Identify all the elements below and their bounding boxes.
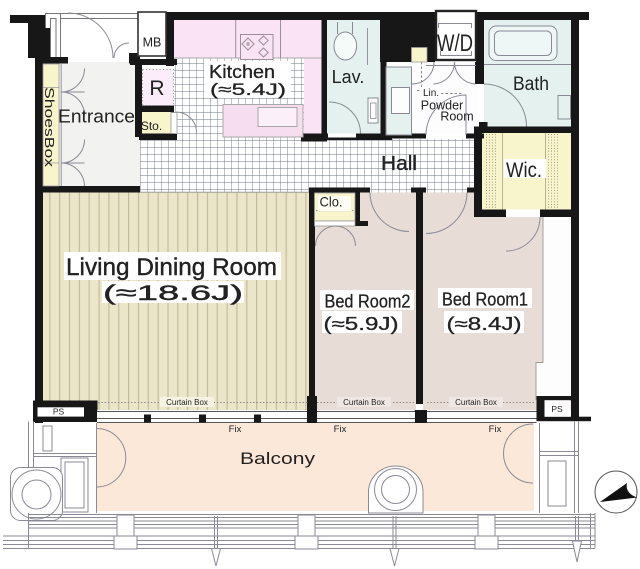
svg-text:Bed Room2: Bed Room2 [325, 292, 411, 312]
svg-text:(≈5.4J): (≈5.4J) [210, 81, 286, 99]
svg-text:PS: PS [53, 407, 65, 417]
svg-text:Lin.: Lin. [423, 88, 439, 99]
svg-text:Bath: Bath [513, 74, 549, 95]
svg-text:Fix: Fix [229, 424, 242, 435]
svg-text:Entrance: Entrance [58, 107, 135, 127]
svg-text:Fix: Fix [489, 424, 502, 435]
svg-text:Fix: Fix [334, 424, 347, 435]
svg-text:Lav.: Lav. [332, 67, 365, 87]
svg-text:Living Dining Room: Living Dining Room [66, 254, 277, 281]
svg-text:R: R [149, 77, 164, 100]
svg-text:Kitchen: Kitchen [209, 62, 275, 82]
svg-text:Clo.: Clo. [320, 194, 343, 210]
svg-text:(≈5.9J): (≈5.9J) [324, 314, 399, 334]
svg-text:Hall: Hall [381, 153, 417, 175]
svg-text:Curtain Box: Curtain Box [455, 398, 497, 407]
svg-text:(≈8.4J): (≈8.4J) [447, 314, 522, 334]
svg-text:Sto.: Sto. [141, 119, 162, 133]
svg-text:MB: MB [143, 36, 162, 50]
svg-text:Curtain Box: Curtain Box [343, 398, 385, 407]
svg-text:Curtain Box: Curtain Box [166, 398, 208, 407]
svg-text:Bed Room1: Bed Room1 [442, 290, 528, 310]
svg-text:Wic.: Wic. [506, 159, 542, 182]
svg-text:ShoesBox: ShoesBox [42, 87, 57, 168]
svg-text:Balcony: Balcony [240, 450, 316, 468]
svg-text:PS: PS [551, 404, 563, 414]
svg-text:(≈18.6J): (≈18.6J) [103, 281, 243, 305]
svg-text:W/D: W/D [437, 30, 473, 57]
svg-text:Room: Room [440, 110, 473, 124]
